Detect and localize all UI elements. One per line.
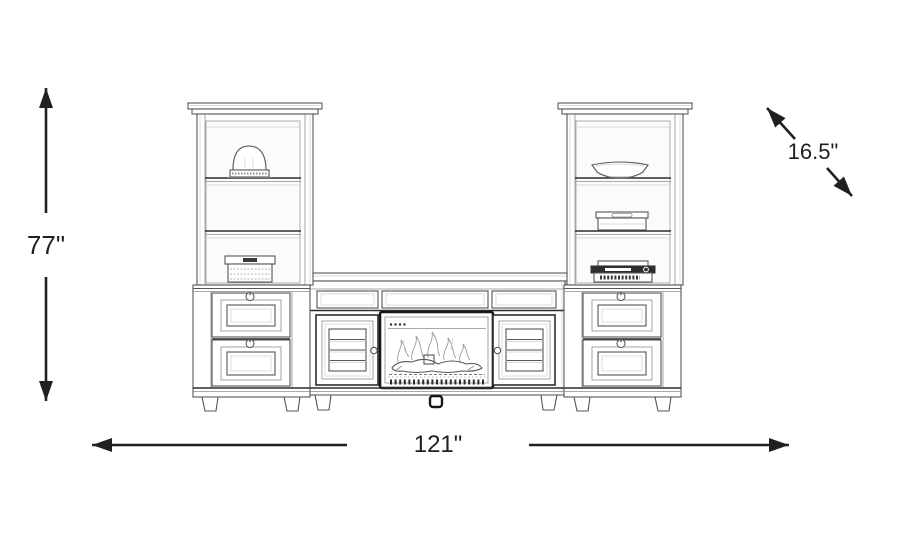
console-ring-pull xyxy=(430,396,442,407)
right-pier-drawer-1 xyxy=(583,293,661,338)
flat-box-decor xyxy=(596,212,648,230)
right-pier xyxy=(558,103,692,411)
console-left-foot xyxy=(315,395,331,410)
depth-dimension: 16.5" xyxy=(767,108,852,196)
console-drawer-row xyxy=(307,289,565,311)
left-louver-door xyxy=(316,315,378,385)
basket-box-decor xyxy=(225,256,275,282)
tv-fireplace-console xyxy=(303,273,572,410)
book-stack-decor xyxy=(591,261,655,282)
right-pier-cornice xyxy=(558,103,692,114)
right-door-knob xyxy=(494,347,500,353)
left-pier-right-foot xyxy=(284,397,300,411)
right-pier-drawer-2 xyxy=(583,340,661,387)
left-pier xyxy=(188,103,322,411)
left-door-knob xyxy=(371,347,377,353)
right-louver-door xyxy=(493,315,555,385)
depth-arrow-upleft xyxy=(767,108,795,139)
depth-dimension-label: 16.5" xyxy=(788,139,839,164)
depth-arrow-downright xyxy=(827,168,852,196)
right-pier-right-foot xyxy=(655,397,671,411)
width-dimension: 121" xyxy=(92,431,789,458)
left-pier-drawer-2 xyxy=(212,340,290,387)
right-pier-left-foot xyxy=(574,397,590,411)
fireplace-insert xyxy=(380,312,493,388)
height-dimension: 77" xyxy=(27,88,65,401)
console-base xyxy=(307,388,565,410)
right-pier-base xyxy=(564,285,681,411)
console-right-foot xyxy=(541,395,557,410)
left-pier-base xyxy=(193,285,310,411)
diagram-canvas: 77" 121" 16.5" xyxy=(0,0,900,550)
height-dimension-label: 77" xyxy=(27,230,65,260)
left-pier-cornice xyxy=(188,103,322,114)
left-pier-drawer-1 xyxy=(212,293,290,338)
right-pier-carcass xyxy=(567,114,683,285)
furniture-dimension-diagram: 77" 121" 16.5" xyxy=(0,0,900,550)
left-pier-left-foot xyxy=(202,397,218,411)
width-dimension-label: 121" xyxy=(414,431,463,458)
